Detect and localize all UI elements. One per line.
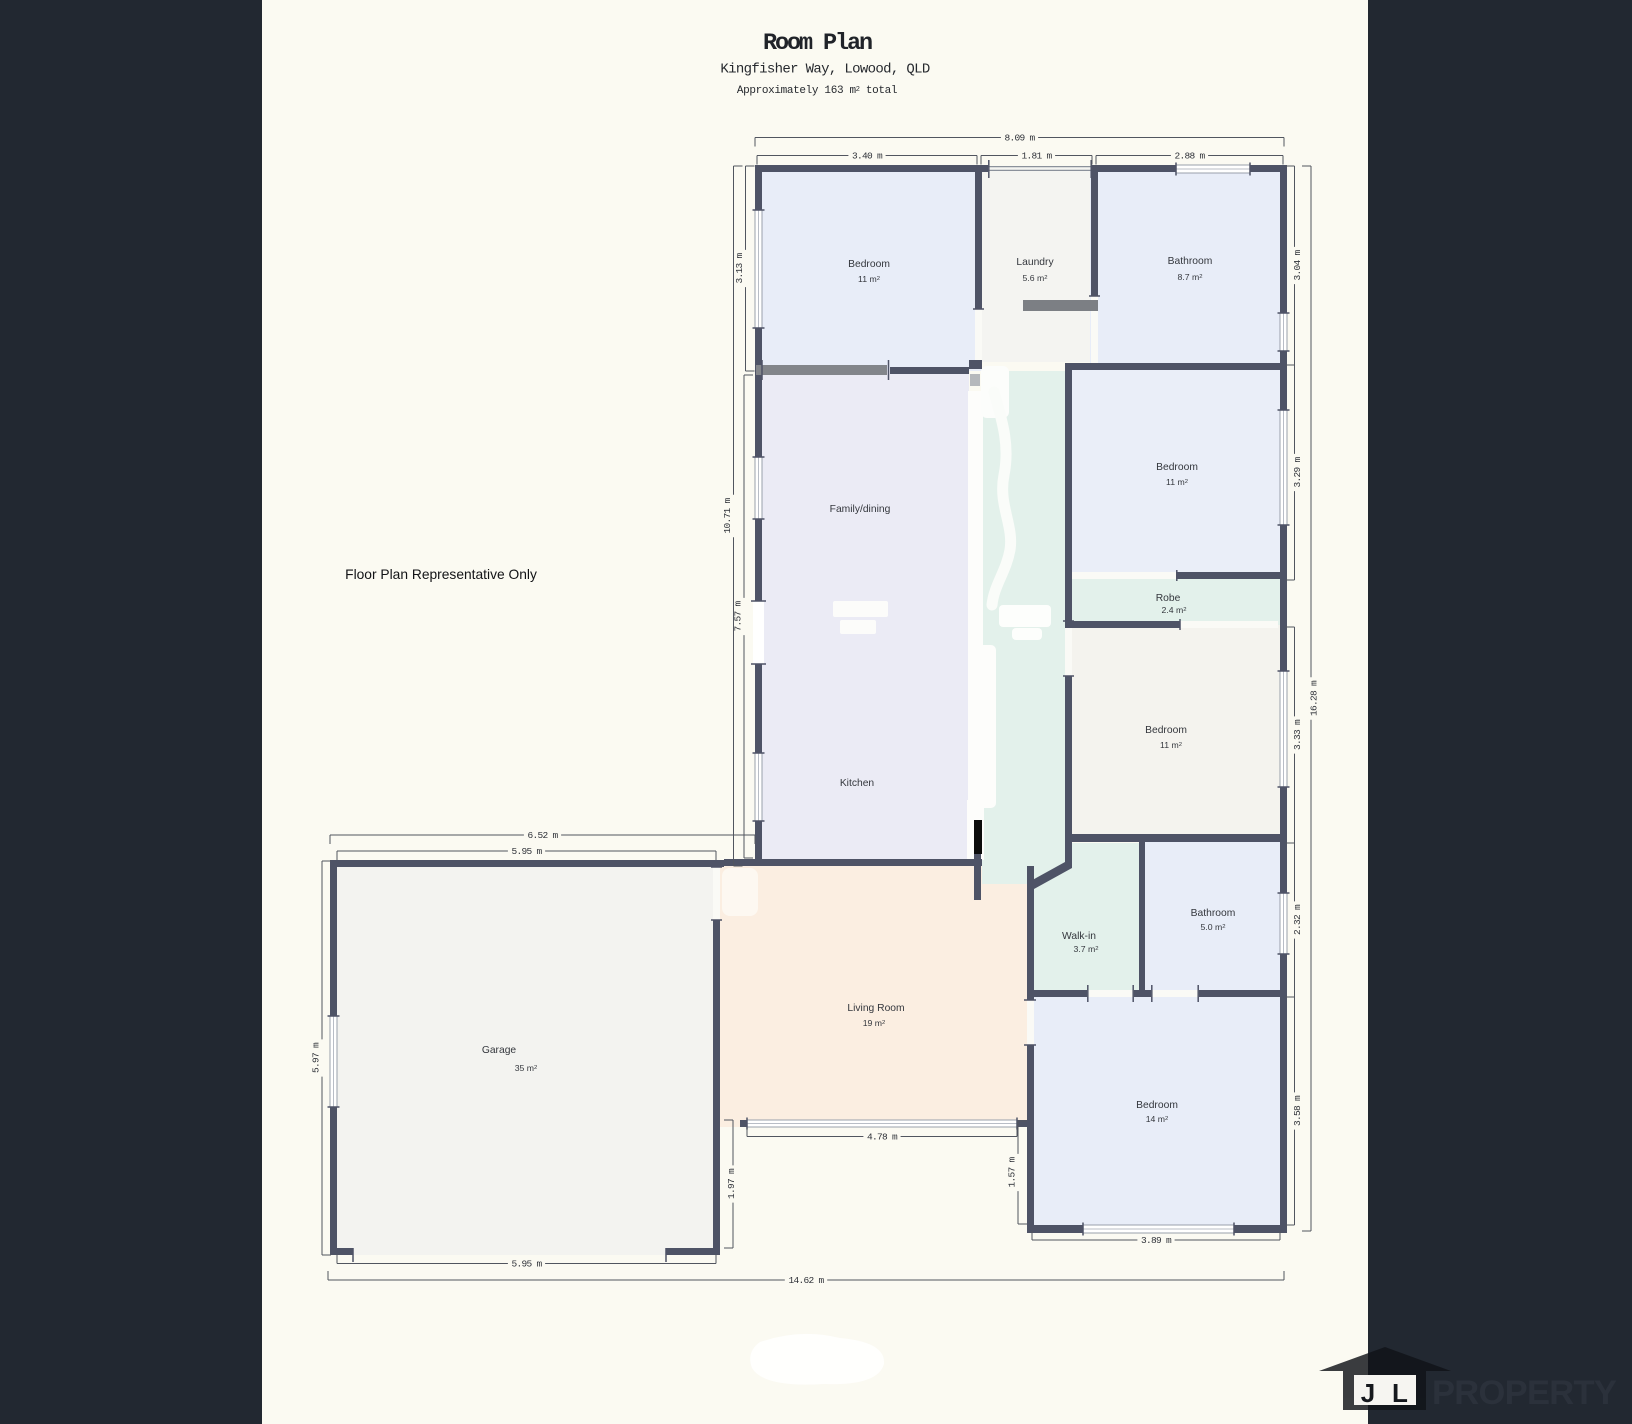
- svg-text:1.81 m: 1.81 m: [1021, 151, 1052, 162]
- svg-text:Bedroom: Bedroom: [1145, 725, 1187, 736]
- svg-text:Floor Plan Representative Only: Floor Plan Representative Only: [345, 567, 537, 582]
- svg-text:Bedroom: Bedroom: [848, 259, 890, 270]
- svg-text:Bathroom: Bathroom: [1168, 256, 1213, 267]
- svg-text:Room Plan: Room Plan: [763, 30, 872, 57]
- svg-text:3.89 m: 3.89 m: [1141, 1235, 1172, 1246]
- svg-text:4.78 m: 4.78 m: [867, 1132, 898, 1143]
- svg-text:5.6 m2: 5.6 m2: [1022, 273, 1047, 283]
- svg-text:6.52 m: 6.52 m: [527, 830, 558, 841]
- svg-text:2.4 m2: 2.4 m2: [1161, 605, 1186, 615]
- svg-text:16.28 m: 16.28 m: [1309, 680, 1320, 716]
- svg-text:J: J: [1361, 1378, 1375, 1408]
- svg-text:Kitchen: Kitchen: [840, 778, 875, 789]
- svg-text:3.33 m: 3.33 m: [1292, 719, 1303, 750]
- svg-text:10.71 m: 10.71 m: [722, 498, 733, 534]
- svg-text:Bedroom: Bedroom: [1136, 1100, 1178, 1111]
- svg-text:PROPERTY: PROPERTY: [1432, 1374, 1617, 1412]
- svg-text:3.29 m: 3.29 m: [1292, 457, 1303, 488]
- svg-text:L: L: [1392, 1378, 1408, 1408]
- svg-text:1.97 m: 1.97 m: [726, 1168, 737, 1199]
- svg-text:Bathroom: Bathroom: [1191, 908, 1236, 919]
- svg-text:5.0 m2: 5.0 m2: [1200, 922, 1225, 932]
- svg-text:Family/dining: Family/dining: [830, 504, 891, 515]
- svg-text:3.7 m2: 3.7 m2: [1073, 944, 1098, 954]
- svg-text:3.40 m: 3.40 m: [852, 151, 883, 162]
- svg-text:35 m2: 35 m2: [515, 1063, 538, 1073]
- svg-text:11 m2: 11 m2: [1166, 477, 1188, 487]
- svg-text:Approximately 163 m2 total: Approximately 163 m2 total: [737, 85, 897, 97]
- svg-text:8.7 m2: 8.7 m2: [1177, 272, 1202, 282]
- svg-text:Kingfisher Way, Lowood, QLD: Kingfisher Way, Lowood, QLD: [720, 62, 930, 78]
- svg-text:3.58 m: 3.58 m: [1292, 1095, 1303, 1126]
- svg-text:11 m2: 11 m2: [858, 274, 880, 284]
- svg-text:2.88 m: 2.88 m: [1174, 151, 1205, 162]
- svg-text:5.97 m: 5.97 m: [311, 1042, 322, 1073]
- svg-text:2.32 m: 2.32 m: [1292, 904, 1303, 935]
- svg-text:3.13 m: 3.13 m: [734, 253, 745, 284]
- svg-text:1.57 m: 1.57 m: [1007, 1157, 1018, 1188]
- svg-text:Garage: Garage: [482, 1045, 517, 1056]
- svg-text:11 m2: 11 m2: [1160, 740, 1182, 750]
- svg-text:Laundry: Laundry: [1016, 257, 1054, 268]
- svg-text:19 m2: 19 m2: [863, 1018, 886, 1028]
- svg-text:3.04 m: 3.04 m: [1292, 250, 1303, 281]
- svg-text:5.95 m: 5.95 m: [511, 1259, 542, 1270]
- svg-text:Living Room: Living Room: [847, 1003, 904, 1014]
- svg-text:14.62 m: 14.62 m: [788, 1275, 824, 1286]
- svg-text:8.09 m: 8.09 m: [1004, 133, 1035, 144]
- svg-text:Walk-in: Walk-in: [1062, 931, 1096, 942]
- svg-text:7.57 m: 7.57 m: [733, 601, 744, 632]
- svg-text:5.95 m: 5.95 m: [511, 846, 542, 857]
- svg-text:Robe: Robe: [1156, 593, 1181, 604]
- svg-text:Bedroom: Bedroom: [1156, 462, 1198, 473]
- svg-text:14 m2: 14 m2: [1146, 1114, 1169, 1124]
